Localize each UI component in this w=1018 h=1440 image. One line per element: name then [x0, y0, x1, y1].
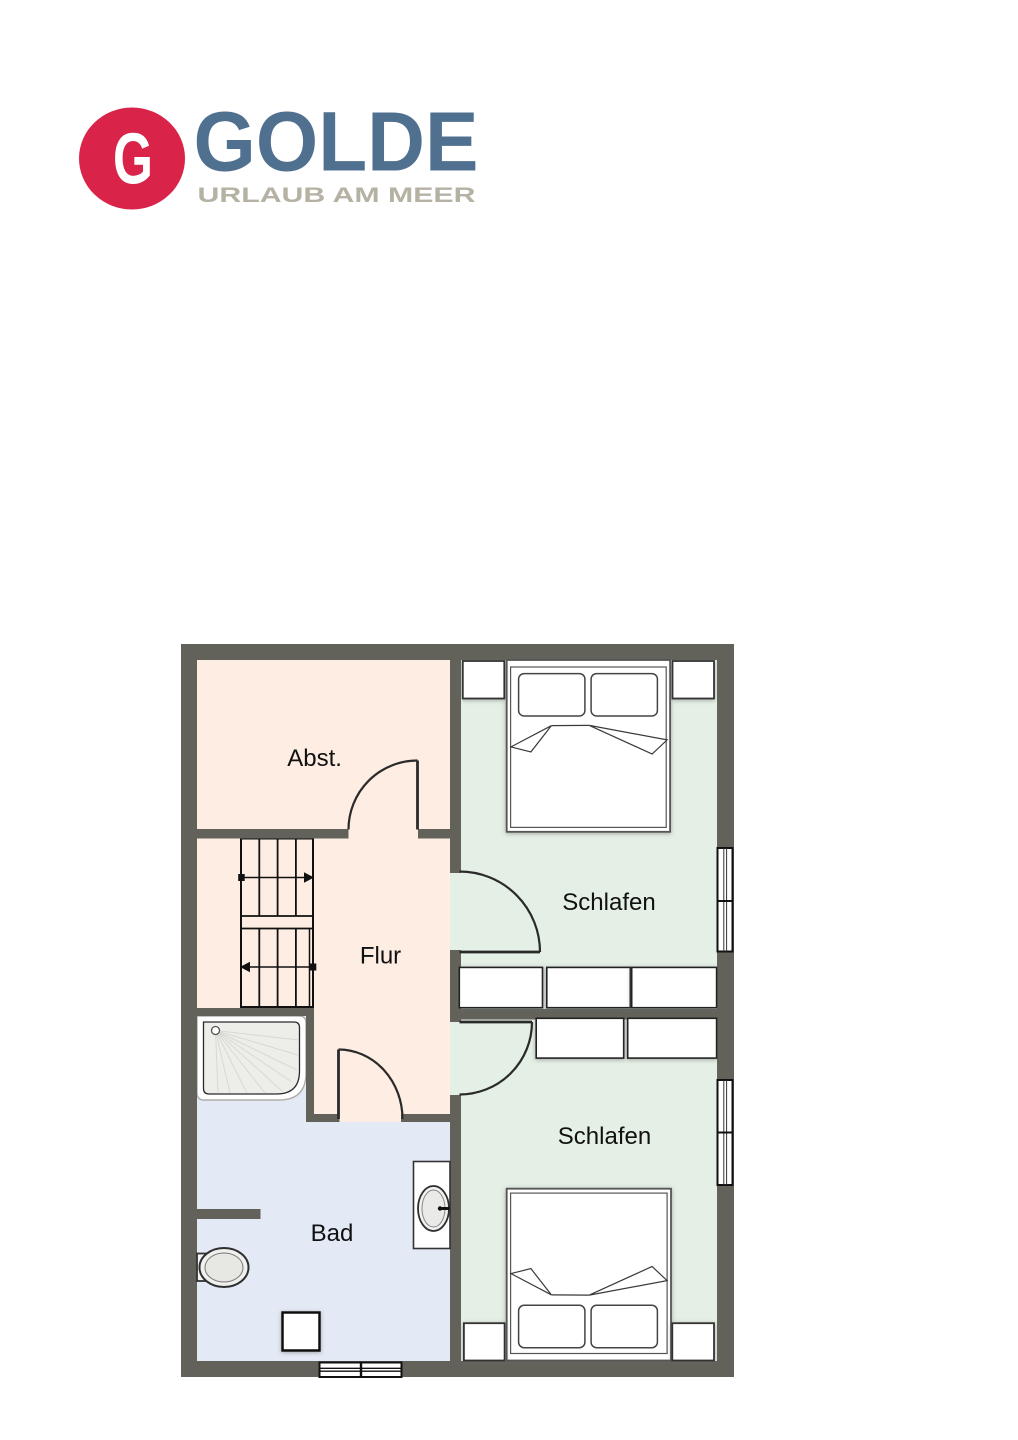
- svg-text:Schlafen: Schlafen: [558, 1123, 651, 1150]
- svg-text:Abst.: Abst.: [287, 745, 342, 772]
- svg-text:G: G: [113, 120, 153, 200]
- svg-text:GOLDE: GOLDE: [194, 95, 479, 189]
- svg-text:Schlafen: Schlafen: [562, 889, 655, 916]
- svg-text:Flur: Flur: [360, 943, 401, 970]
- svg-text:URLAUB AM MEER: URLAUB AM MEER: [198, 184, 476, 207]
- svg-text:Bad: Bad: [311, 1220, 354, 1247]
